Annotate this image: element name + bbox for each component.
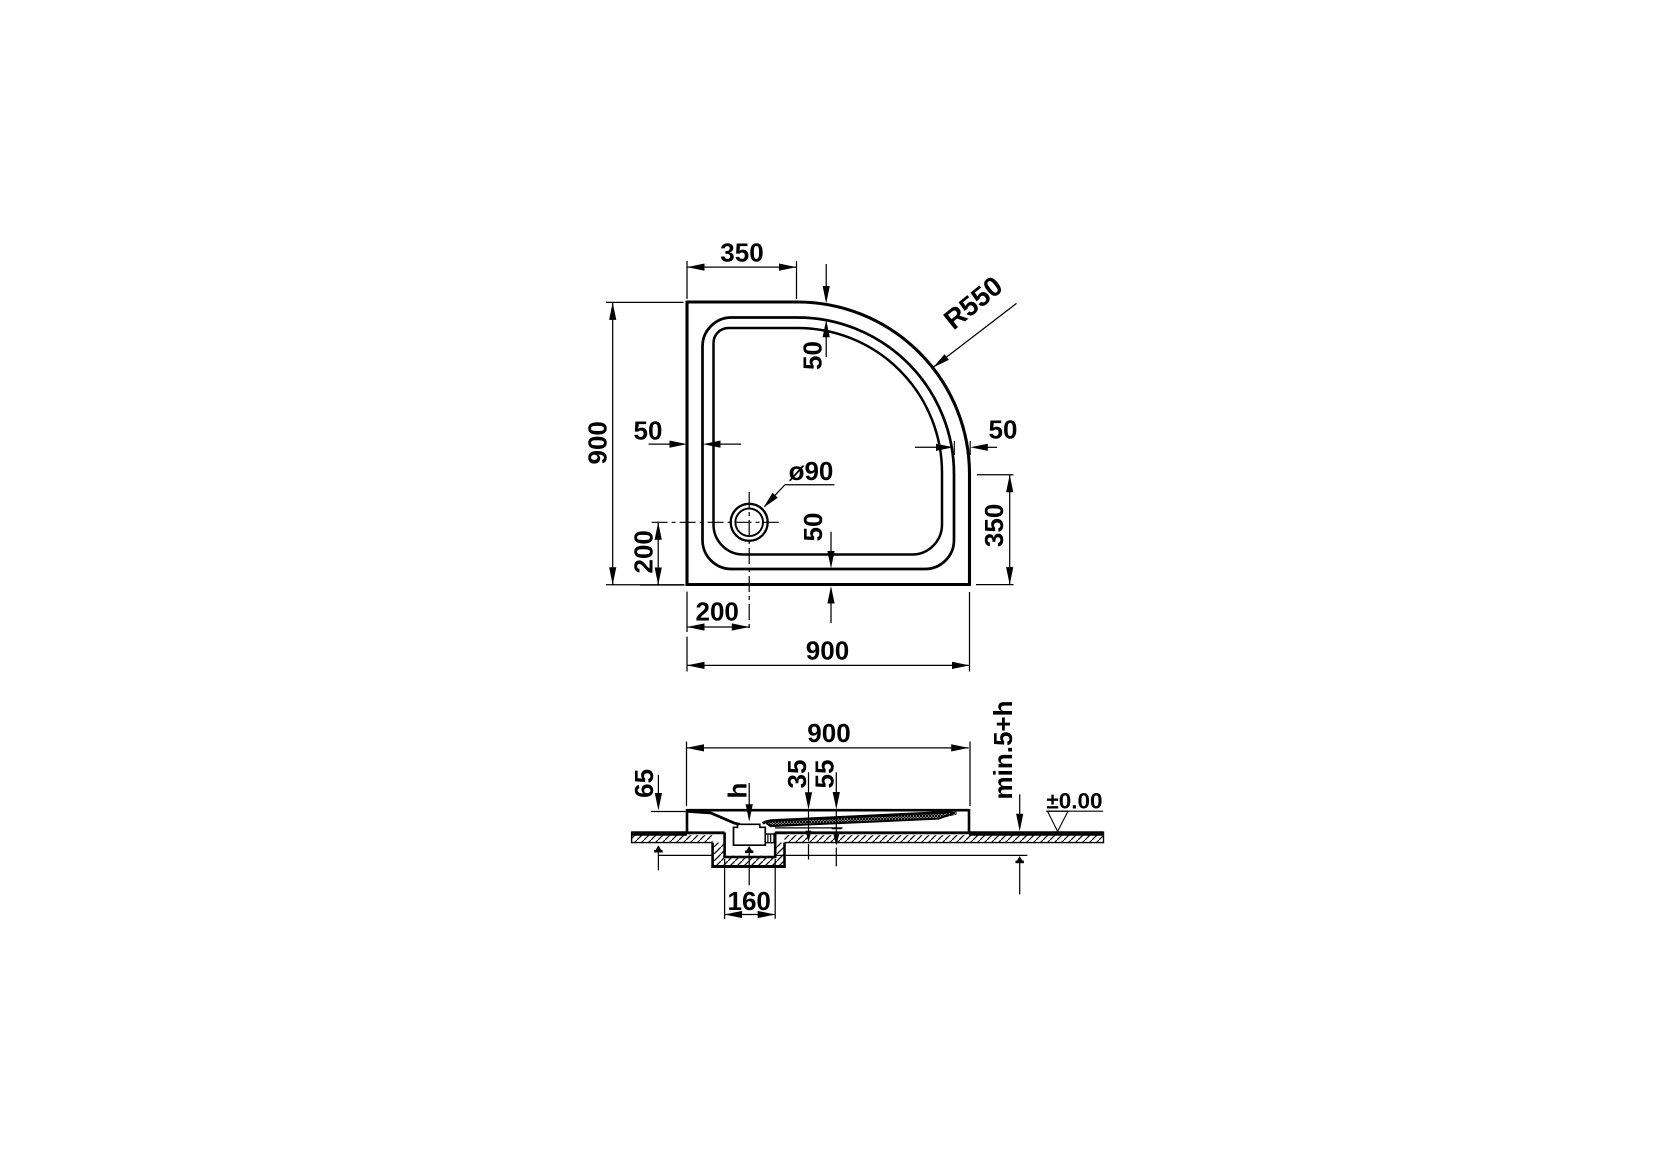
svg-text:50: 50 — [798, 341, 828, 370]
svg-text:50: 50 — [634, 416, 663, 446]
svg-text:h: h — [723, 783, 753, 799]
svg-text:35: 35 — [782, 760, 812, 789]
svg-text:55: 55 — [810, 760, 840, 789]
svg-text:50: 50 — [989, 415, 1018, 445]
svg-text:ø90: ø90 — [789, 456, 834, 486]
svg-text:200: 200 — [696, 597, 739, 627]
svg-text:160: 160 — [728, 886, 771, 916]
svg-text:min.5+h: min.5+h — [988, 701, 1018, 800]
svg-text:900: 900 — [806, 636, 849, 666]
svg-text:900: 900 — [807, 718, 850, 748]
svg-text:65: 65 — [629, 769, 659, 798]
svg-text:±0.00: ±0.00 — [1046, 788, 1102, 813]
svg-text:50: 50 — [798, 513, 828, 542]
svg-text:900: 900 — [583, 421, 613, 464]
svg-text:200: 200 — [629, 530, 659, 573]
svg-text:350: 350 — [979, 504, 1009, 547]
svg-text:350: 350 — [720, 238, 763, 268]
